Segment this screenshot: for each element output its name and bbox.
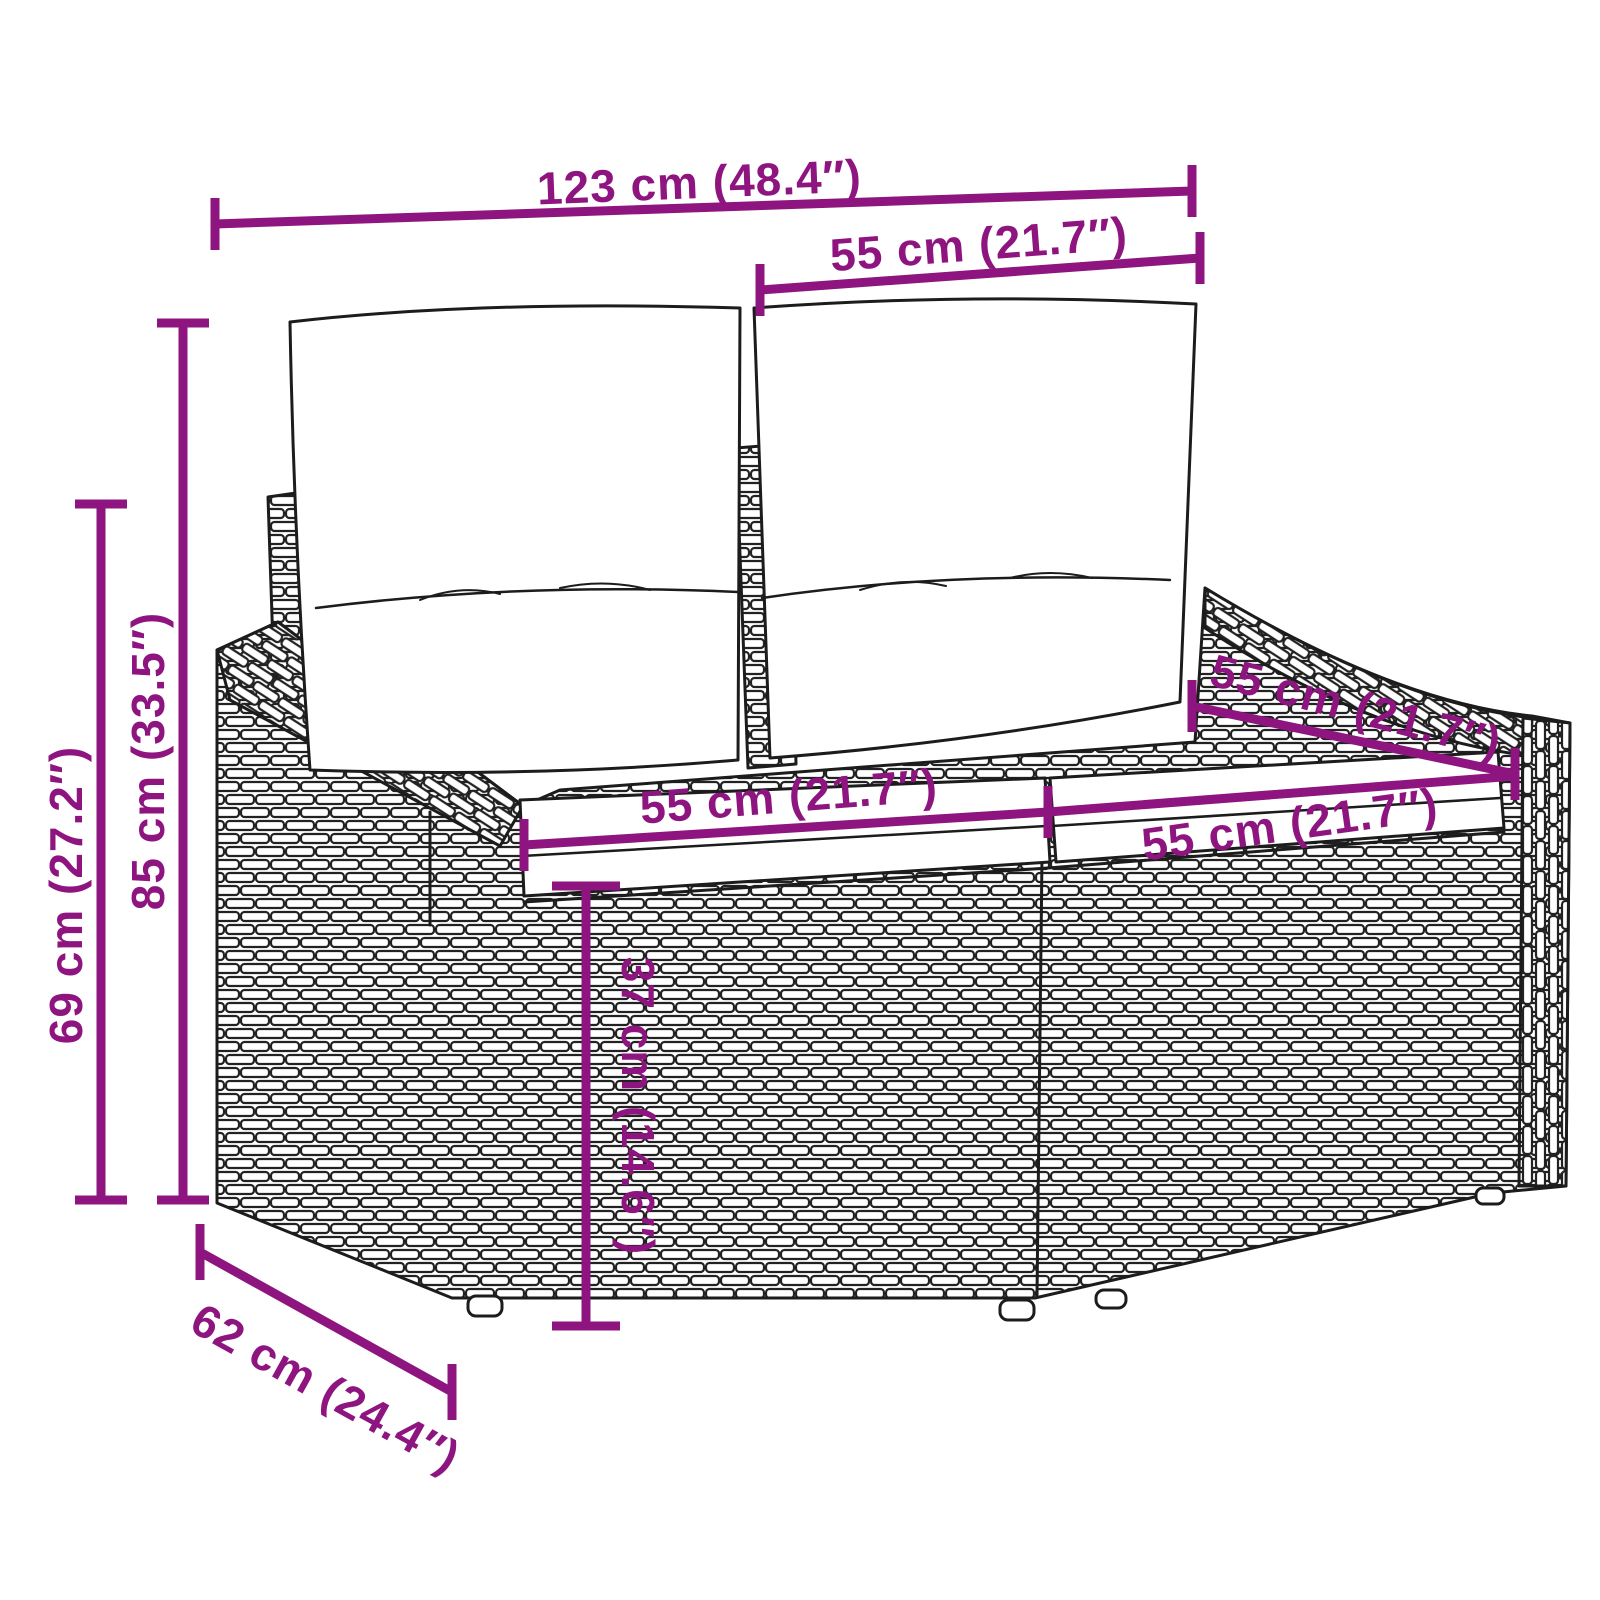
sofa-leg bbox=[1096, 1290, 1126, 1308]
dim-label-armrest-height: 69 cm (27.2″) bbox=[40, 746, 92, 1044]
sofa-back-cushion-right bbox=[754, 299, 1196, 758]
sofa-leg bbox=[1476, 1188, 1504, 1204]
diagram-canvas: 123 cm (48.4″) 55 cm (21.7″) 85 cm (33.5… bbox=[0, 0, 1600, 1600]
dim-label-seat-height: 37 cm (14.6″) bbox=[612, 957, 664, 1255]
dim-total-height: 85 cm (33.5″) bbox=[122, 323, 209, 1200]
sofa-back-cushion-left bbox=[290, 306, 740, 773]
dim-label-total-height: 85 cm (33.5″) bbox=[122, 612, 174, 910]
sofa-right-post bbox=[1519, 718, 1570, 1186]
sofa-leg bbox=[468, 1296, 502, 1316]
dimension-diagram: 123 cm (48.4″) 55 cm (21.7″) 85 cm (33.5… bbox=[0, 0, 1600, 1600]
dim-armrest-height: 69 cm (27.2″) bbox=[40, 504, 127, 1200]
sofa-leg bbox=[1000, 1300, 1034, 1320]
